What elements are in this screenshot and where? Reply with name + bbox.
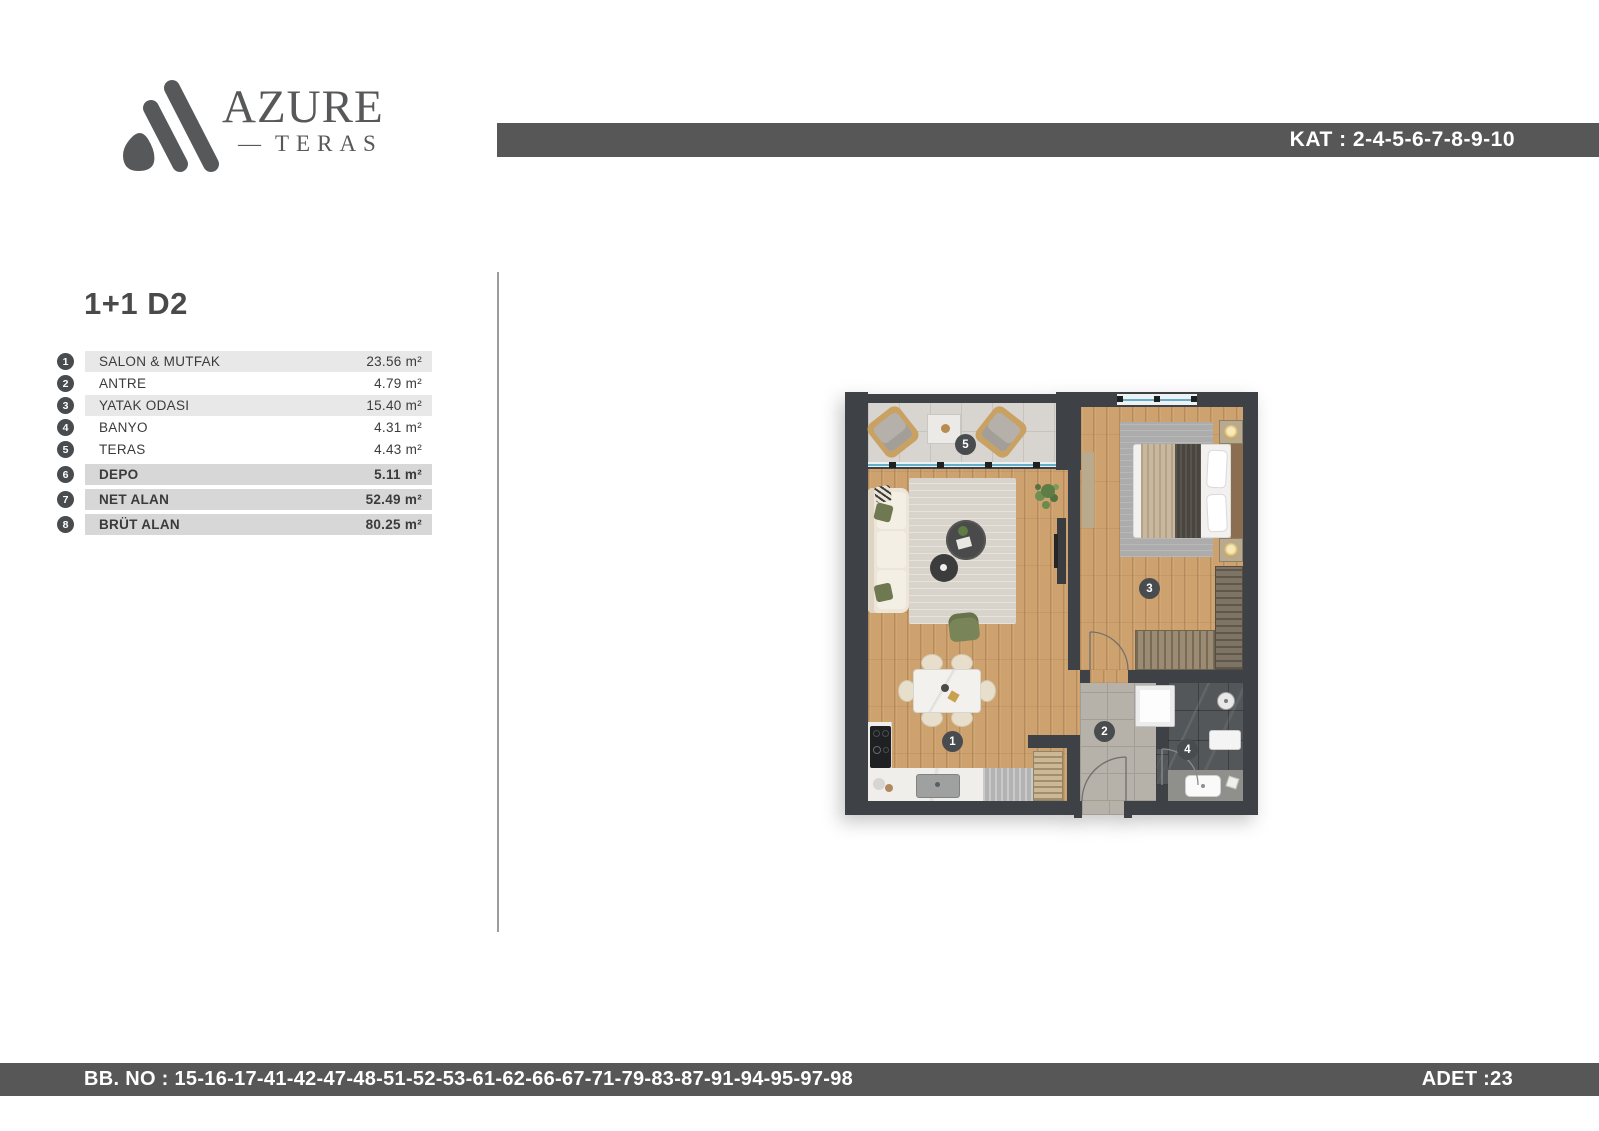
- plan-badge-teras: 5: [955, 434, 976, 455]
- table-row: 5 TERAS4.43 m²: [57, 439, 432, 460]
- table-row: 3 YATAK ODASI15.40 m²: [57, 395, 432, 416]
- radiator-cabinet: [1033, 751, 1063, 801]
- bb-no-label: BB. NO : 15-16-17-41-42-47-48-51-52-53-6…: [84, 1068, 853, 1091]
- wall-living-hall: [1067, 735, 1080, 801]
- wall-bath-left-lower: [1156, 785, 1168, 801]
- row-number-badge: 4: [57, 419, 74, 436]
- room-label: TERAS: [99, 442, 374, 457]
- room-label: NET ALAN: [99, 492, 366, 507]
- row-number-badge: 8: [57, 516, 74, 533]
- glass-frame-mark: [937, 462, 944, 468]
- room-area: 23.56 m²: [366, 354, 422, 369]
- armchair-green: [948, 612, 981, 643]
- brand-name: AZURE: [222, 80, 384, 134]
- sofa-pillow-olive: [873, 582, 893, 602]
- unit-numbers-bar: BB. NO : 15-16-17-41-42-47-48-51-52-53-6…: [0, 1063, 1599, 1096]
- wall-left: [845, 392, 868, 815]
- wall-terrace-parapet: [857, 394, 1077, 403]
- wall-right: [1243, 392, 1258, 815]
- row-number-badge: 3: [57, 397, 74, 414]
- wall-bottom-left: [845, 801, 1080, 815]
- table-row: 1 SALON & MUTFAK23.56 m²: [57, 351, 432, 372]
- room-area: 80.25 m²: [366, 517, 422, 532]
- room-label: ANTRE: [99, 376, 374, 391]
- room-label: YATAK ODASI: [99, 398, 366, 413]
- wall-bottom-right: [1126, 801, 1258, 815]
- brochure-page: AZURE —TERAS KAT : 2-4-5-6-7-8-9-10 1+1 …: [0, 0, 1599, 1131]
- bath-sink-drain: [1201, 784, 1205, 788]
- room-area: 5.11 m²: [374, 467, 422, 482]
- window-frame-mark: [1117, 396, 1123, 402]
- vertical-divider: [497, 272, 499, 932]
- window-frame-mark: [1154, 396, 1160, 402]
- plant: [1041, 484, 1055, 498]
- table-row: 8 BRÜT ALAN80.25 m²: [57, 514, 432, 535]
- bed-pillow: [1206, 450, 1228, 489]
- hall-cabinet: [1135, 685, 1175, 727]
- nightstand-lamp: [1224, 425, 1238, 439]
- plan-badge-yatak: 3: [1139, 578, 1160, 599]
- bed-pillow: [1206, 494, 1228, 533]
- toilet: [1209, 730, 1241, 750]
- wall-hall-top-left: [1080, 670, 1090, 683]
- room-area: 15.40 m²: [366, 398, 422, 413]
- wall-living-stub: [1028, 735, 1070, 748]
- entrance-door-frame: [1124, 801, 1132, 818]
- nightstand-lamp: [1224, 543, 1238, 557]
- room-label: BRÜT ALAN: [99, 517, 366, 532]
- room-label: SALON & MUTFAK: [99, 354, 366, 369]
- bathroom-door-opening: [1156, 749, 1168, 785]
- dining-table-decor: [941, 684, 949, 692]
- row-number-badge: 7: [57, 491, 74, 508]
- brand-dash: —: [238, 131, 261, 156]
- wall-terrace-column: [1056, 392, 1081, 470]
- sink-faucet: [935, 782, 940, 787]
- room-area: 4.31 m²: [374, 420, 422, 435]
- azure-logo-icon: [118, 78, 223, 173]
- bed-headboard: [1231, 440, 1243, 542]
- floor-info-bar: KAT : 2-4-5-6-7-8-9-10: [497, 123, 1599, 157]
- stove-burner: [873, 730, 880, 737]
- tv-screen: [1054, 534, 1058, 568]
- wall-middle: [1068, 462, 1080, 670]
- room-area: 52.49 m²: [366, 492, 422, 507]
- wardrobe-right: [1215, 566, 1243, 670]
- stove-burner: [883, 747, 889, 753]
- terrace-glass-line: [868, 464, 1056, 466]
- bedroom-door-opening: [1090, 670, 1128, 683]
- plan-badge-salon: 1: [942, 731, 963, 752]
- room-label: DEPO: [99, 467, 374, 482]
- stove-burner: [873, 746, 881, 754]
- entrance-opening: [1082, 801, 1124, 815]
- wall-hall-top-right: [1128, 670, 1243, 683]
- floor-plan: 1 2 3 4 5: [845, 378, 1258, 815]
- room-area: 4.43 m²: [374, 442, 422, 457]
- table-row: 2 ANTRE4.79 m²: [57, 373, 432, 394]
- table-row: 7 NET ALAN52.49 m²: [57, 489, 432, 510]
- glass-frame-mark: [985, 462, 992, 468]
- coffee-table-small-decor: [940, 564, 947, 571]
- row-number-badge: 5: [57, 441, 74, 458]
- glass-frame-mark: [1033, 462, 1040, 468]
- table-row: 4 BANYO4.31 m²: [57, 417, 432, 438]
- area-table: 1 SALON & MUTFAK23.56 m² 2 ANTRE4.79 m² …: [57, 351, 432, 536]
- row-number-badge: 6: [57, 466, 74, 483]
- bedroom-runner: [1082, 452, 1094, 528]
- stove-burner: [882, 730, 889, 737]
- sofa-cushion: [877, 531, 906, 568]
- unit-title: 1+1 D2: [84, 286, 188, 322]
- bed-throw-beige: [1141, 444, 1175, 538]
- terrace-table-decor: [941, 424, 950, 433]
- breakfast-decor: [873, 778, 885, 790]
- room-area: 4.79 m²: [374, 376, 422, 391]
- window-frame-mark: [1191, 396, 1197, 402]
- entrance-door-frame: [1074, 801, 1082, 818]
- plan-badge-banyo: 4: [1177, 739, 1198, 760]
- kitchen-mat: [983, 768, 1035, 801]
- adet-label: ADET :23: [1422, 1068, 1513, 1091]
- brand-subtitle: —TERAS: [238, 131, 383, 157]
- tv-unit: [1057, 518, 1066, 584]
- shower-head-center: [1224, 699, 1228, 703]
- plan-badge-antre: 2: [1094, 721, 1115, 742]
- row-number-badge: 2: [57, 375, 74, 392]
- kat-label: KAT : 2-4-5-6-7-8-9-10: [1290, 128, 1515, 152]
- sofa-pillow-pattern: [874, 485, 893, 504]
- dresser-bottom: [1135, 630, 1215, 670]
- coffee-table-plant: [958, 526, 968, 536]
- bed-throw-dark: [1175, 444, 1201, 538]
- room-label: BANYO: [99, 420, 374, 435]
- row-number-badge: 1: [57, 353, 74, 370]
- glass-frame-mark: [889, 462, 896, 468]
- table-row: 6 DEPO5.11 m²: [57, 464, 432, 485]
